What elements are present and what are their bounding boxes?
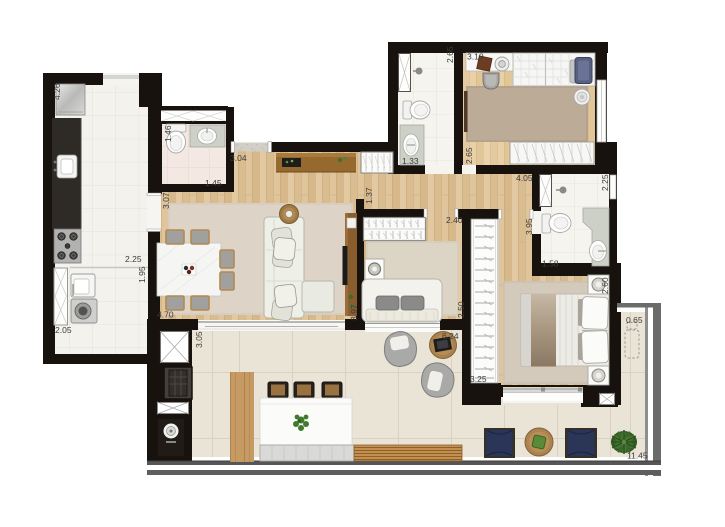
svg-text:2.65: 2.65	[464, 147, 474, 164]
svg-text:4.26: 4.26	[52, 83, 62, 100]
svg-text:2.50: 2.50	[456, 301, 466, 318]
svg-text:2.05: 2.05	[55, 325, 72, 335]
svg-text:4.70: 4.70	[157, 310, 174, 320]
svg-text:3.07: 3.07	[161, 192, 171, 209]
svg-text:4.05: 4.05	[516, 173, 533, 183]
svg-text:6.24: 6.24	[442, 331, 459, 341]
svg-text:1.33: 1.33	[402, 156, 419, 166]
svg-text:2.40: 2.40	[446, 215, 463, 225]
svg-text:2.65: 2.65	[445, 46, 455, 63]
svg-text:1.95: 1.95	[137, 266, 147, 283]
svg-text:1.37: 1.37	[364, 187, 374, 204]
svg-text:1.58: 1.58	[542, 259, 559, 269]
svg-text:3.97: 3.97	[349, 304, 359, 321]
svg-text:3.04: 3.04	[230, 153, 247, 163]
svg-text:11.45: 11.45	[627, 451, 648, 461]
svg-text:3.05: 3.05	[194, 331, 204, 348]
svg-text:3.25: 3.25	[470, 374, 487, 384]
svg-text:1.45: 1.45	[205, 178, 222, 188]
svg-text:3.10: 3.10	[467, 52, 484, 62]
svg-text:2.60: 2.60	[600, 277, 610, 294]
svg-text:2.25: 2.25	[600, 174, 610, 191]
svg-text:1.46: 1.46	[163, 125, 173, 142]
svg-text:0.65: 0.65	[626, 315, 643, 325]
svg-text:3.95: 3.95	[524, 218, 534, 235]
svg-text:2.25: 2.25	[125, 254, 142, 264]
